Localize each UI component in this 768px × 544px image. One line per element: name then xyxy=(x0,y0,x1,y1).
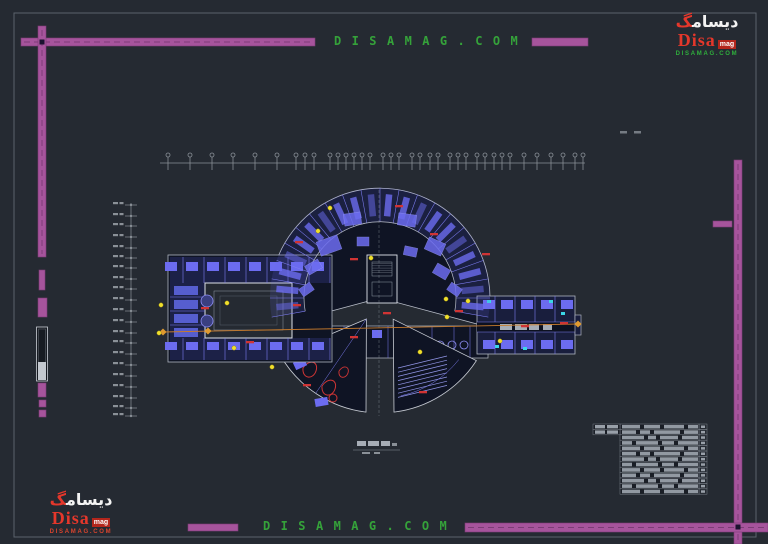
legend-table xyxy=(593,424,707,494)
mini-scale-legend xyxy=(353,441,400,454)
logo-arabic-main: دیسام xyxy=(66,490,112,509)
logo-arabic-wordmark: دیسامگ xyxy=(664,14,750,30)
logo-brand-name: Disa xyxy=(52,508,90,528)
logo-arabic-main: دیسام xyxy=(692,12,738,31)
watermark-top: D I S A M A G . C O M xyxy=(334,34,519,48)
building-plan xyxy=(157,188,582,416)
disamag-logo-top-right: دیسامگ Disamag DISAMAG.COM xyxy=(664,14,750,57)
left-dimension-line xyxy=(113,202,137,417)
logo-arabic-wordmark: دیسامگ xyxy=(40,492,122,508)
logo-brand-line: Disamag xyxy=(664,31,750,49)
disamag-logo-bottom-left: دیسامگ Disamag DISAMAG.COM xyxy=(40,492,122,535)
watermark-bottom: D I S A M A G . C O M xyxy=(263,519,448,533)
top-axis-ruler xyxy=(160,131,641,170)
logo-arabic-accent: گ xyxy=(676,12,692,31)
logo-brand-suffix: mag xyxy=(718,40,736,49)
logo-site-url: DISAMAG.COM xyxy=(664,51,750,57)
logo-brand-suffix: mag xyxy=(92,518,110,527)
logo-arabic-accent: گ xyxy=(50,490,66,509)
floor-plan-drawing xyxy=(0,0,768,544)
cad-viewport: D I S A M A G . C O M D I S A M A G . C … xyxy=(0,0,768,544)
logo-site-url: DISAMAG.COM xyxy=(40,529,122,535)
logo-brand-name: Disa xyxy=(678,30,716,50)
logo-brand-line: Disamag xyxy=(40,509,122,527)
